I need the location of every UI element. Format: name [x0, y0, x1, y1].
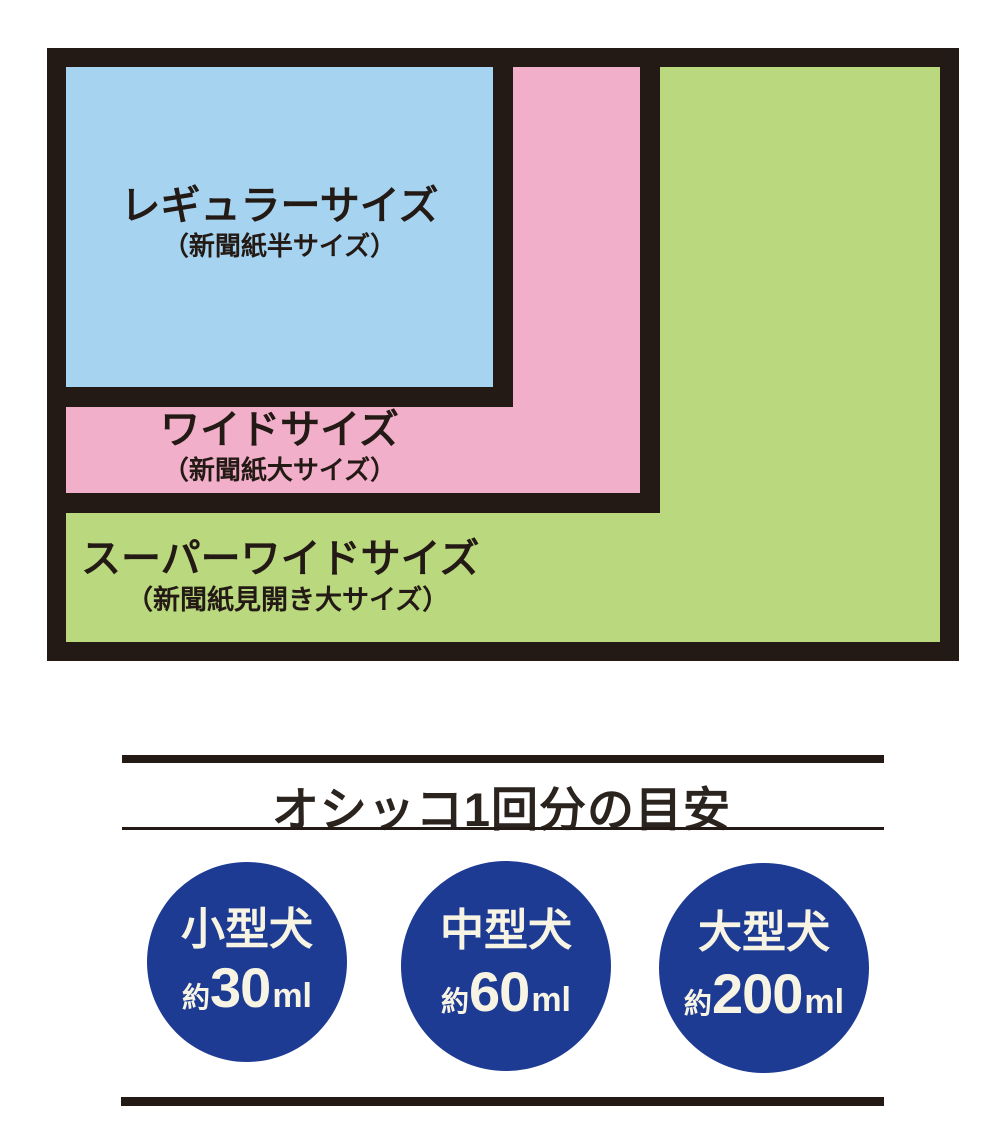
pet-pad-infographic: レギュラーサイズ （新聞紙半サイズ） ワイドサイズ （新聞紙大サイズ） スーパー…	[0, 0, 1003, 1148]
wide-size-subtitle: （新聞紙大サイズ）	[66, 456, 493, 486]
super-wide-size-title: スーパーワイドサイズ	[81, 538, 479, 580]
urine-amount: 約30ml	[147, 960, 347, 1016]
approx-prefix: 約	[684, 982, 712, 1022]
wide-size-label: ワイドサイズ （新聞紙大サイズ）	[66, 409, 493, 486]
regular-size-label: レギュラーサイズ （新聞紙半サイズ）	[66, 185, 493, 262]
dog-type-label: 中型犬	[401, 909, 611, 953]
amount-unit: ml	[272, 977, 312, 1016]
approx-prefix: 約	[182, 976, 210, 1016]
heading-underline	[122, 827, 884, 830]
amount-unit: ml	[804, 983, 844, 1022]
regular-size-subtitle: （新聞紙半サイズ）	[66, 232, 493, 262]
amount-value: 60	[469, 964, 529, 1020]
approx-prefix: 約	[441, 980, 469, 1020]
super-wide-size-label: スーパーワイドサイズ （新聞紙見開き大サイズ）	[81, 538, 479, 616]
dog-size-badge-medium: 中型犬 約60ml	[401, 861, 611, 1071]
dog-size-badge-small: 小型犬 約30ml	[147, 862, 347, 1062]
urine-amount: 約60ml	[401, 964, 611, 1020]
dog-type-label: 小型犬	[147, 908, 347, 952]
amount-value: 200	[712, 966, 802, 1022]
dog-size-badge-large: 大型犬 約200ml	[659, 863, 869, 1073]
dog-type-label: 大型犬	[659, 911, 869, 955]
amount-value: 30	[210, 960, 270, 1016]
regular-size-title: レギュラーサイズ	[66, 185, 493, 227]
super-wide-size-subtitle: （新聞紙見開き大サイズ）	[81, 585, 479, 616]
top-rule	[122, 755, 884, 763]
pad-size-diagram: レギュラーサイズ （新聞紙半サイズ） ワイドサイズ （新聞紙大サイズ） スーパー…	[47, 48, 959, 661]
wide-size-title: ワイドサイズ	[66, 409, 493, 451]
urine-amount: 約200ml	[659, 966, 869, 1022]
amount-unit: ml	[531, 981, 571, 1020]
bottom-rule	[121, 1097, 884, 1106]
